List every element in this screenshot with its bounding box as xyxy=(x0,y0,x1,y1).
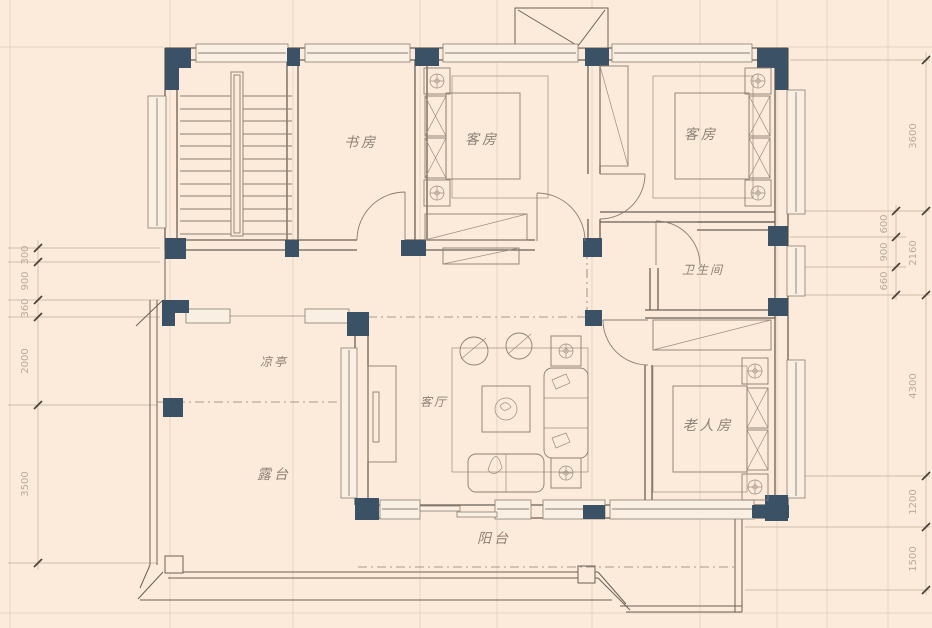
tv xyxy=(373,392,379,442)
armchair xyxy=(460,337,488,365)
windows xyxy=(148,44,805,519)
room-label-living-room: 客厅 xyxy=(420,395,448,409)
staircase xyxy=(180,72,292,236)
dim-right-4300: 4300 xyxy=(908,373,919,398)
dim-left-2000: 2000 xyxy=(20,348,31,373)
dim-left-900: 900 xyxy=(20,271,31,290)
walls xyxy=(165,48,788,518)
dim-right-660: 660 xyxy=(879,271,890,290)
room-label-guest-room-1: 客房 xyxy=(465,132,499,148)
dim-right-1200: 1200 xyxy=(908,489,919,514)
room-label-pavilion: 凉亭 xyxy=(260,355,288,369)
room-label-bathroom: 卫生间 xyxy=(682,263,724,277)
sofa xyxy=(544,368,588,458)
tv-cabinet xyxy=(368,366,396,462)
roof-bay-outline xyxy=(515,8,608,48)
room-label-study: 书房 xyxy=(344,135,378,151)
coffee-table xyxy=(482,386,530,432)
dimension-chain-left: 300 900 360 2000 3500 xyxy=(8,240,160,570)
bathroom-door xyxy=(656,221,700,265)
floor-plan: 300 900 360 2000 3500 600 900 660 3600 2… xyxy=(0,0,932,628)
terrace-balcony-curbs xyxy=(136,300,742,612)
dim-right-900: 900 xyxy=(879,242,890,261)
room-label-guest-room-2: 客房 xyxy=(684,127,718,143)
room-label-elderly-room: 老人房 xyxy=(683,418,734,434)
elderly-room-furniture xyxy=(653,320,771,500)
living-room-furniture xyxy=(368,333,588,492)
room-label-balcony: 阳台 xyxy=(477,531,511,547)
guest-room-1-door xyxy=(537,193,585,241)
dim-right-600: 600 xyxy=(879,214,890,233)
rosette-icon xyxy=(748,480,762,494)
study-door xyxy=(357,192,405,240)
dim-right-3600: 3600 xyxy=(908,123,919,148)
elderly-room-door xyxy=(603,320,648,365)
rosette-icon xyxy=(751,186,765,200)
rosette-icon xyxy=(751,74,765,88)
floor-plan-canvas: 300 900 360 2000 3500 600 900 660 3600 2… xyxy=(0,0,932,628)
plant-decor xyxy=(488,456,502,473)
rosette-icon xyxy=(430,186,444,200)
columns xyxy=(162,48,789,521)
rosette-icon xyxy=(559,466,573,480)
dim-left-300: 300 xyxy=(20,245,31,264)
dim-right-1500: 1500 xyxy=(908,546,919,571)
dim-left-3500: 3500 xyxy=(20,471,31,496)
rosette-icon xyxy=(559,344,573,358)
room-label-terrace: 露台 xyxy=(257,467,291,483)
dim-right-2160: 2160 xyxy=(908,240,919,265)
room-labels: 书房 客房 客房 卫生间 凉亭 客厅 老人房 露台 阳台 xyxy=(257,127,734,547)
rosette-icon xyxy=(748,364,762,378)
dim-left-360: 360 xyxy=(20,298,31,317)
guest-room-1-furniture xyxy=(424,68,548,264)
rosette-icon xyxy=(430,74,444,88)
